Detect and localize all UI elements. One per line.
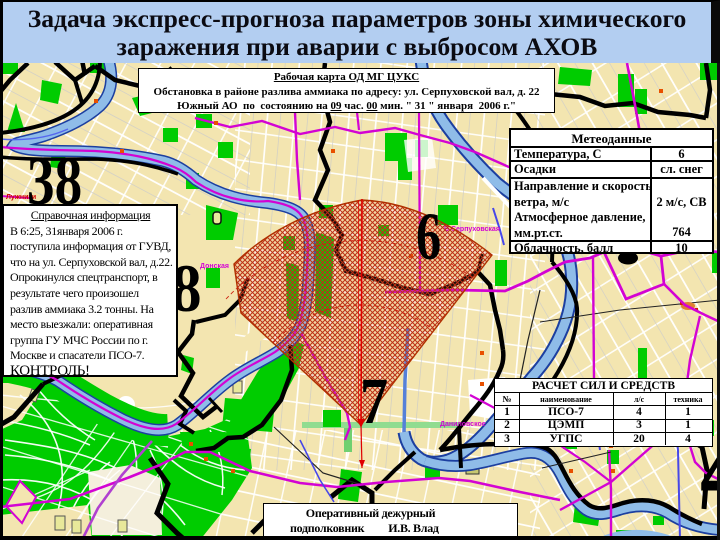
svg-text:Даниловское: Даниловское [440, 421, 486, 428]
svg-text:7: 7 [360, 365, 388, 438]
svg-text:6: 6 [416, 199, 441, 274]
svg-text:Донская: Донская [200, 263, 229, 270]
